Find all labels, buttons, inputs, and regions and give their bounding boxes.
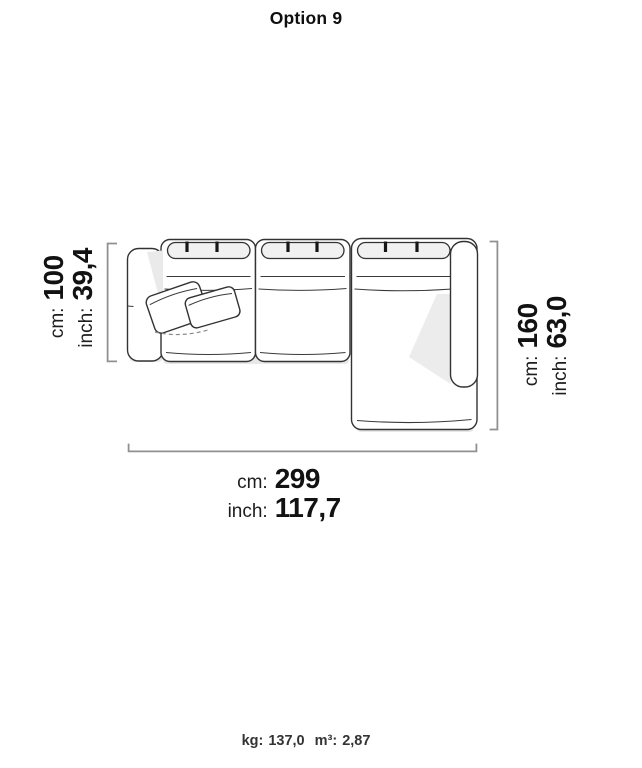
chaise-length-dimension-label: cm: 160 inch: 63,0 (513, 296, 571, 404)
chaise-inch-value: 63,0 (542, 296, 571, 349)
depth-cm-value: 100 (39, 255, 68, 300)
volume-value: 2,87 (342, 733, 370, 749)
depth-inch-unit: inch: (77, 308, 97, 356)
width-bracket (129, 444, 477, 452)
width-cm-value: 299 (275, 464, 320, 493)
depth-bracket (108, 244, 117, 362)
weight-volume-info: kg: 137,0 m³: 2,87 (0, 733, 612, 749)
volume-label: m³: (315, 733, 338, 749)
chaise-length-bracket (490, 242, 498, 430)
sofa-option-page: Option 9 (0, 0, 642, 768)
depth-dimension-label: cm: 100 inch: 39,4 (39, 248, 97, 356)
right-armrest (451, 242, 478, 388)
width-cm-unit: cm: (219, 473, 267, 493)
chaise-cm-unit: cm: (522, 356, 542, 404)
width-dimension-label: cm: 299 inch: 117,7 (219, 464, 340, 522)
weight-value: 137,0 (268, 733, 304, 749)
back-rails (168, 243, 451, 259)
width-inch-unit: inch: (219, 502, 267, 522)
chaise-cm-value: 160 (513, 303, 542, 348)
depth-cm-unit: cm: (48, 308, 68, 356)
chaise-inch-unit: inch: (551, 356, 571, 404)
weight-label: kg: (242, 733, 264, 749)
width-inch-value: 117,7 (275, 493, 341, 522)
depth-inch-value: 39,4 (68, 248, 97, 301)
